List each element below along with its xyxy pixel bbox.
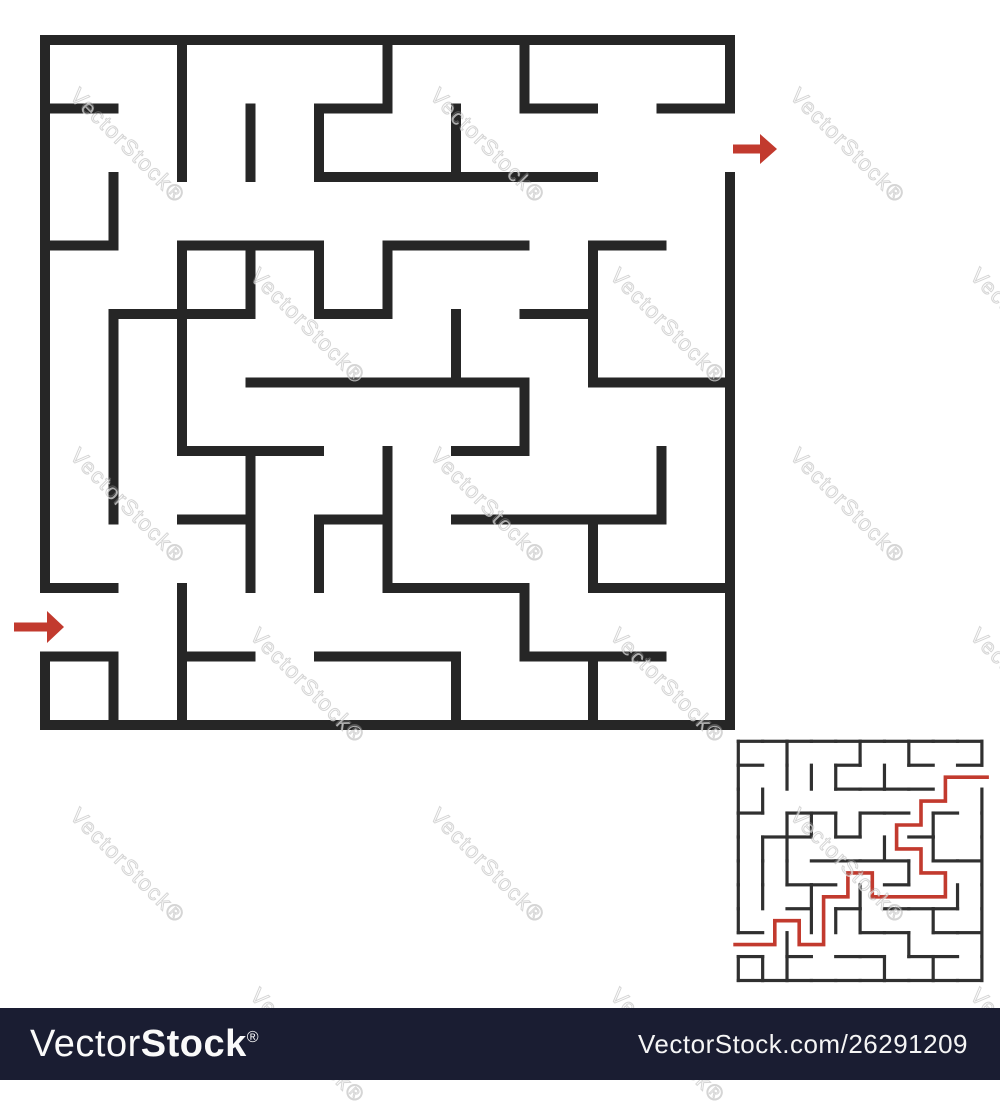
stock-image-canvas: VectorStock®VectorStock®VectorStock®Vect… <box>0 0 1000 1080</box>
logo-light-text: Vector <box>30 1023 141 1065</box>
entrance-arrow <box>14 611 64 643</box>
maze-arrows <box>0 0 1000 1080</box>
footer-bar: VectorStock® VectorStock.com/26291209 <box>0 1008 1000 1080</box>
logo-bold-text: Stock <box>141 1023 247 1065</box>
exit-arrow <box>733 134 777 164</box>
image-url: VectorStock.com/26291209 <box>638 1029 968 1060</box>
registered-mark: ® <box>247 1029 259 1046</box>
vectorstock-logo: VectorStock® <box>30 1023 259 1066</box>
